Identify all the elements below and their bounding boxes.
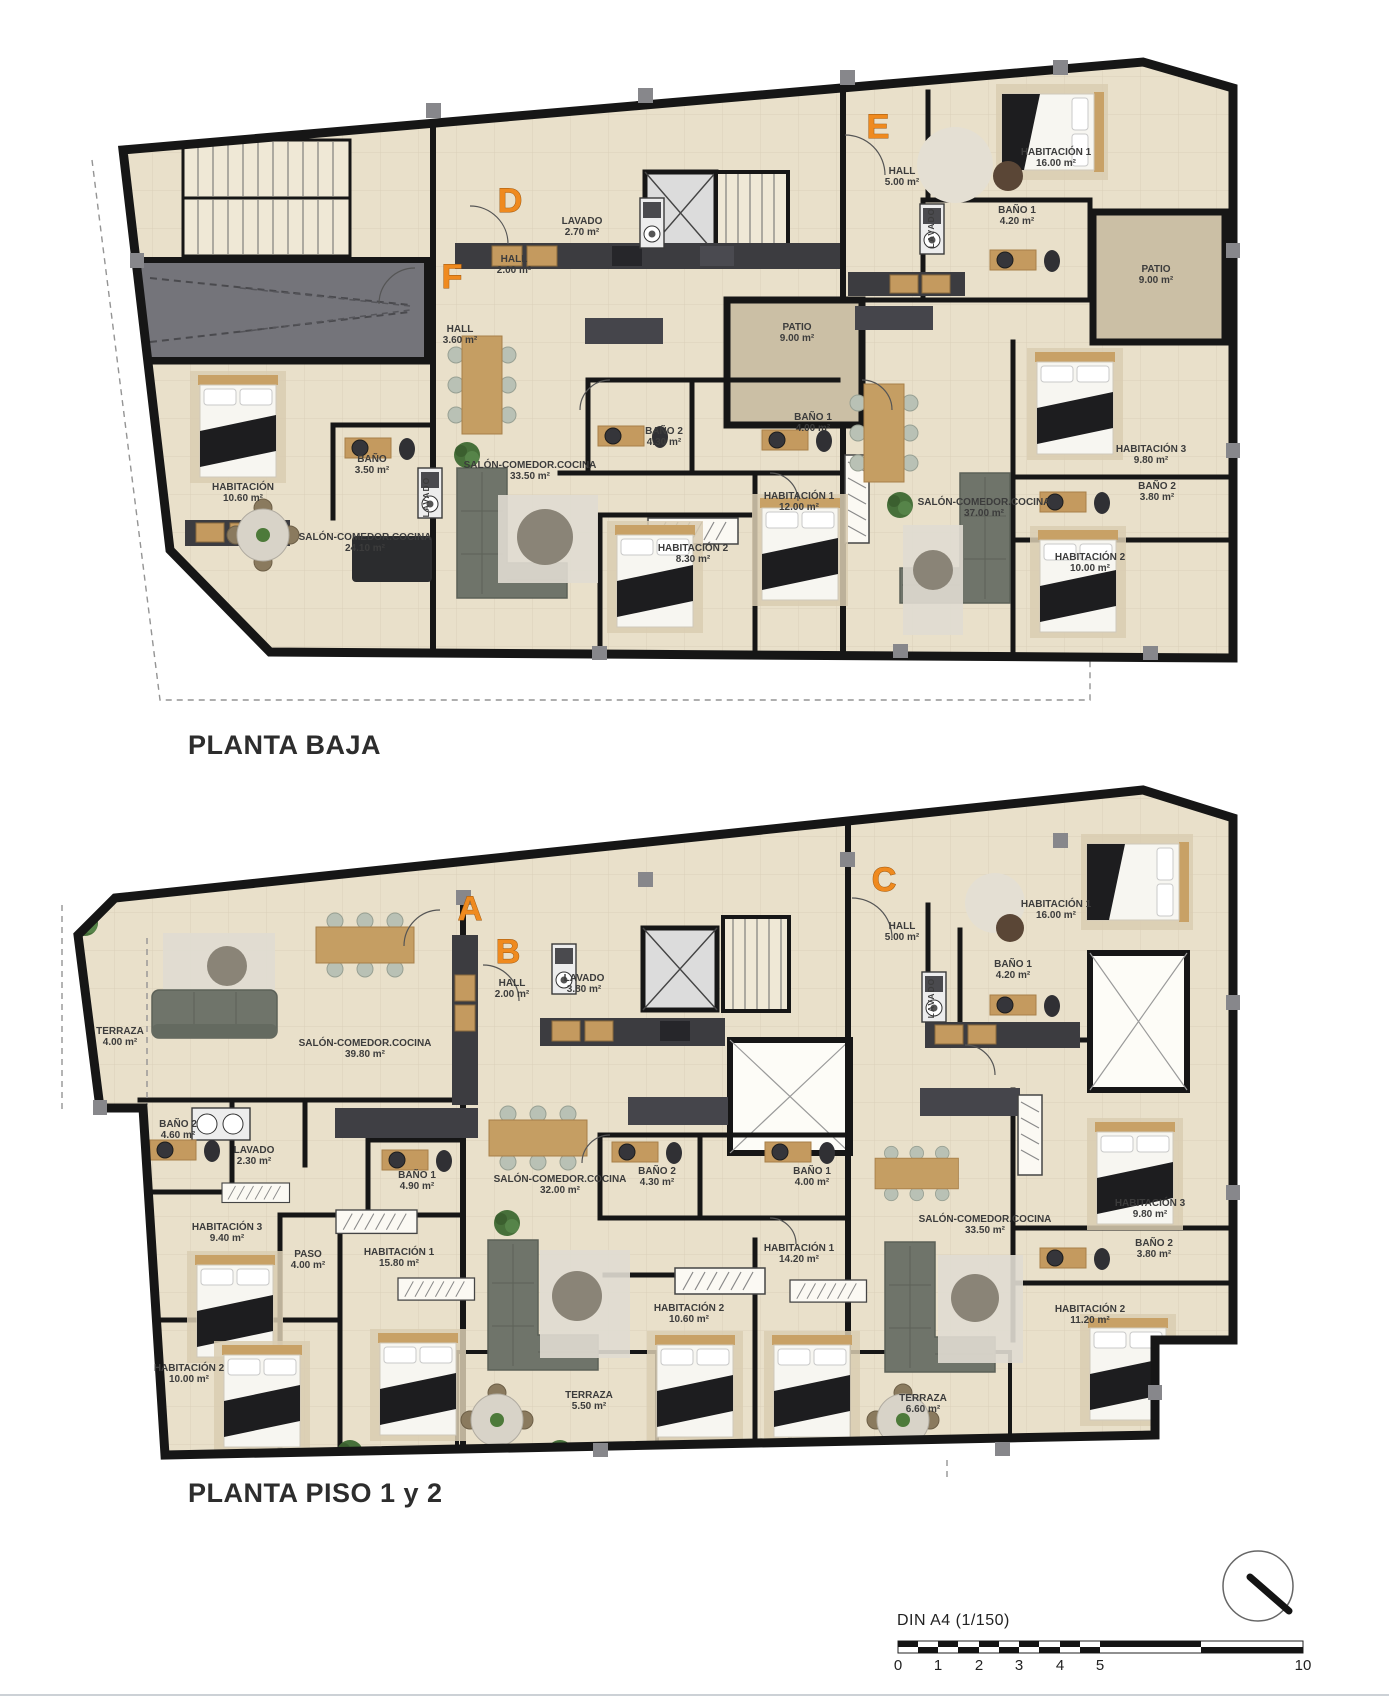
bed-icon	[370, 1329, 466, 1441]
washing-machine-icon	[192, 1108, 250, 1140]
room-label: BAÑO 24.30 m²	[645, 424, 683, 448]
stairs-core	[716, 172, 788, 254]
bed-icon	[190, 371, 286, 483]
bathroom-fixtures-icon	[1040, 1248, 1110, 1270]
dining-table-icon	[489, 1106, 587, 1170]
paper-scale-label: DIN A4 (1/150)	[897, 1612, 1010, 1630]
scale-tick-3: 3	[1015, 1657, 1023, 1674]
bathroom-fixtures-icon	[382, 1150, 452, 1172]
scale-tick-1: 1	[934, 1657, 942, 1674]
apartment-letter-A: A	[458, 890, 483, 928]
plan-planta-baja: HALL3.60 m²HABITACIÓN10.60 m²BAÑO3.50 m²…	[92, 60, 1240, 700]
apartment-letter-B: B	[496, 933, 521, 971]
bathroom-fixtures-icon	[990, 250, 1060, 272]
room-label: BAÑO 14.20 m²	[998, 203, 1036, 227]
bed-icon	[214, 1341, 310, 1453]
room-label: LAVADO3.80 m²	[564, 973, 605, 995]
bed-icon	[1080, 1314, 1176, 1426]
room-label: BAÑO 14.20 m²	[994, 957, 1032, 981]
plan-title-planta-piso: PLANTA PISO 1 y 2	[188, 1478, 443, 1509]
bed-icon	[647, 1331, 743, 1443]
north-arrow-icon	[1223, 1551, 1293, 1621]
room-label: PATIO9.00 m²	[780, 322, 815, 344]
room-label: HALL5.00 m²	[885, 166, 920, 188]
scale-tick-0: 0	[894, 1657, 902, 1674]
bathroom-fixtures-icon	[990, 995, 1060, 1017]
rug	[517, 509, 573, 565]
room-label: BAÑO 23.80 m²	[1138, 479, 1176, 503]
bathroom-fixtures-icon	[612, 1142, 682, 1164]
room-label: TERRAZA4.00 m²	[96, 1026, 144, 1048]
room-label: BAÑO 24.30 m²	[638, 1164, 676, 1188]
stairs	[183, 140, 350, 256]
dining-table-icon	[448, 336, 516, 434]
room-label: BAÑO 14.00 m²	[794, 410, 832, 434]
bathroom-fixtures-icon	[765, 1142, 835, 1164]
bathroom-fixtures-icon	[1040, 492, 1110, 514]
apartment-letter-E: E	[867, 108, 890, 146]
armchair-icon	[996, 914, 1024, 942]
wardrobe-icon	[675, 1268, 765, 1294]
scale-tick-2: 2	[975, 1657, 983, 1674]
wardrobe-icon	[1018, 1095, 1042, 1175]
scale-tick-5: 5	[1096, 1657, 1104, 1674]
bed-icon	[607, 521, 703, 633]
room-label: LAVADO2.30 m²	[234, 1145, 275, 1167]
plan-planta-piso-1-2: TERRAZA4.00 m²SALÓN-COMEDOR.COCINA39.80 …	[62, 790, 1240, 1478]
bed-icon	[764, 1331, 860, 1443]
dining-table-icon	[316, 913, 414, 977]
scale-tick-labels: 01234510	[894, 1657, 1312, 1674]
rug	[917, 127, 993, 203]
sheet-edge-line	[0, 1694, 1389, 1696]
room-label: TERRAZA5.50 m²	[565, 1390, 613, 1412]
floor-plan-drawing: HALL3.60 m²HABITACIÓN10.60 m²BAÑO3.50 m²…	[0, 0, 1389, 1704]
scale-tick-4: 4	[1056, 1657, 1064, 1674]
plan-title-planta-baja: PLANTA BAJA	[188, 730, 381, 761]
room-label: LAVADO2.70 m²	[562, 216, 603, 238]
dining-table-icon	[850, 384, 918, 482]
armchair-icon	[993, 161, 1023, 191]
room-label: BAÑO3.50 m²	[355, 452, 390, 476]
room-label: TERRAZA6.60 m²	[899, 1393, 947, 1415]
apartment-letter-F: F	[442, 258, 463, 296]
room-label: PASO4.00 m²	[291, 1249, 326, 1271]
bed-icon	[1081, 834, 1193, 930]
bed-icon	[1030, 526, 1126, 638]
room-label: HALL2.00 m²	[497, 254, 532, 276]
room-label: LAVADO	[421, 477, 431, 518]
elevator	[643, 928, 717, 1010]
scale-bar	[898, 1641, 1303, 1653]
room-label: HALL3.60 m²	[443, 324, 478, 346]
sofa-icon	[152, 990, 277, 1038]
garage-ramp	[137, 260, 427, 360]
lightwell-void	[1090, 953, 1187, 1090]
scale-tick-10: 10	[1295, 1657, 1312, 1674]
room-label: PATIO9.00 m²	[1139, 264, 1174, 286]
room-label: HALL2.00 m²	[495, 978, 530, 1000]
bed-icon	[1027, 348, 1123, 460]
apartment-letter-C: C	[872, 861, 897, 899]
room-label: BAÑO 23.80 m²	[1135, 1236, 1173, 1260]
room-label: LAVADO	[926, 208, 936, 249]
room-label: BAÑO 14.90 m²	[398, 1168, 436, 1192]
plant-icon	[494, 1210, 520, 1236]
bathroom-fixtures-icon	[150, 1140, 220, 1162]
rug	[951, 1274, 999, 1322]
stairs-core	[723, 917, 789, 1011]
apartment-letter-D: D	[498, 182, 523, 220]
rug	[913, 550, 953, 590]
room-label: BAÑO 14.00 m²	[793, 1164, 831, 1188]
patio-middle	[727, 300, 862, 425]
room-label: HALL5.00 m²	[885, 921, 920, 943]
room-label: BAÑO 24.60 m²	[159, 1117, 197, 1141]
plant-icon	[887, 492, 913, 518]
rug	[552, 1271, 602, 1321]
rug	[207, 946, 247, 986]
floor-plan-sheet: HALL3.60 m²HABITACIÓN10.60 m²BAÑO3.50 m²…	[0, 0, 1389, 1704]
room-label: LAVADO	[926, 978, 936, 1019]
washing-machine-icon	[640, 198, 664, 248]
